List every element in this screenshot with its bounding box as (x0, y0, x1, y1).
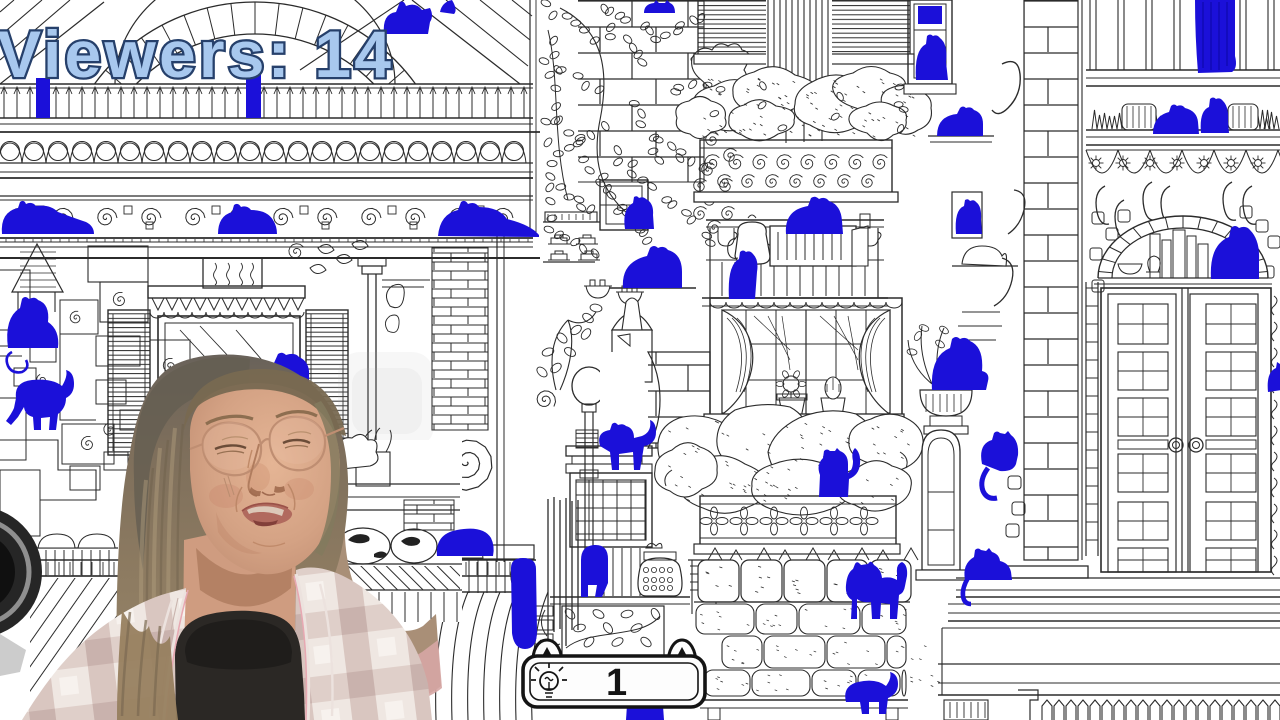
svg-text:Viewers: 14: Viewers: 14 (0, 17, 391, 91)
svg-text:1: 1 (606, 662, 627, 704)
